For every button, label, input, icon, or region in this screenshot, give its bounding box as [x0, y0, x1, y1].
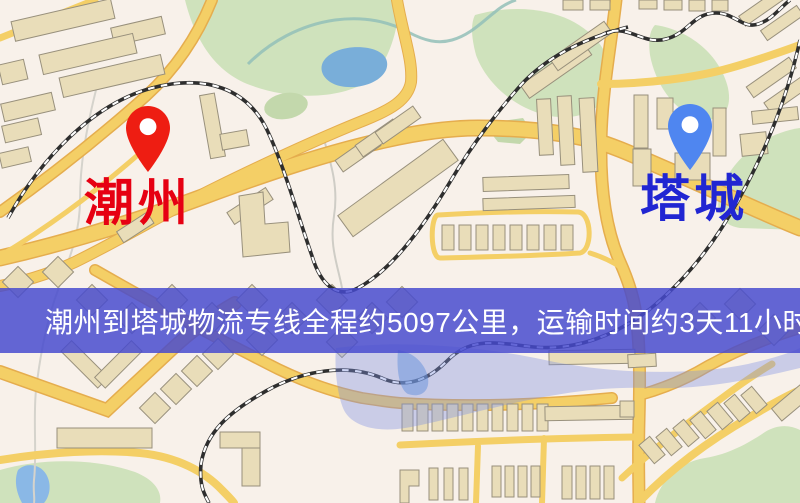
origin-label: 潮州 [84, 178, 192, 228]
route-info-banner: 潮州到塔城物流专线全程约5097公里，运输时间约3天11小时. [0, 288, 800, 353]
destination-pin-icon [668, 104, 712, 170]
map-canvas[interactable]: 潮州 塔城 潮州到塔城物流专线全程约5097公里，运输时间约3天11小时. [0, 0, 800, 503]
map-background [0, 0, 800, 503]
origin-pin[interactable] [126, 106, 170, 172]
destination-label: 塔城 [640, 174, 748, 224]
route-info-text: 潮州到塔城物流专线全程约5097公里，运输时间约3天11小时. [0, 301, 800, 341]
destination-pin[interactable] [668, 104, 712, 170]
origin-pin-icon [126, 106, 170, 172]
